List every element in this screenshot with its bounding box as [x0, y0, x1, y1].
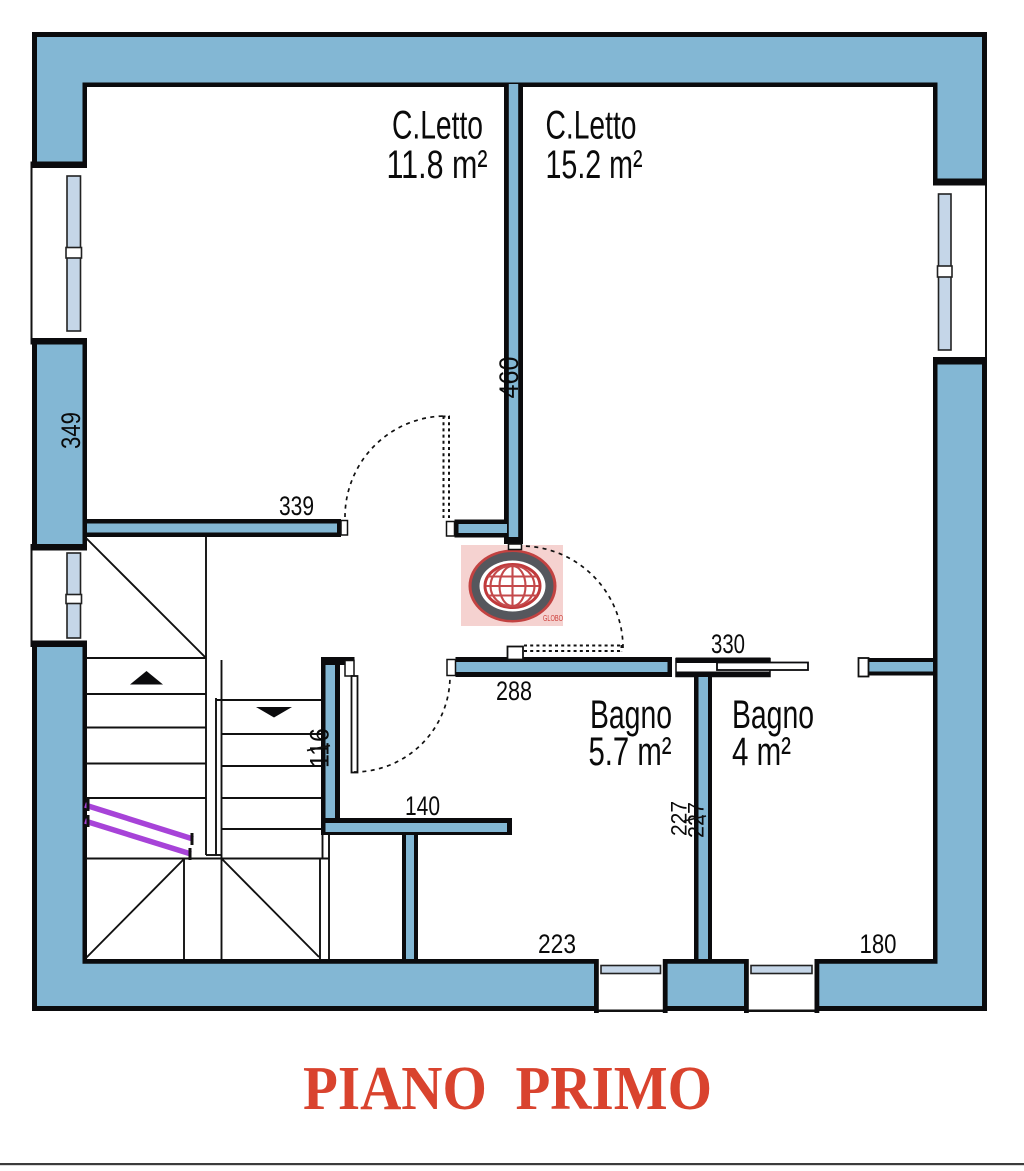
svg-text:223: 223	[538, 929, 576, 959]
svg-text:349: 349	[56, 412, 86, 449]
svg-text:180: 180	[860, 929, 897, 959]
svg-text:460: 460	[494, 357, 524, 399]
svg-text:4 m²: 4 m²	[732, 730, 791, 774]
svg-text:GLOBO: GLOBO	[543, 614, 563, 623]
svg-text:C.Letto: C.Letto	[546, 104, 637, 148]
svg-text:5.7 m²: 5.7 m²	[589, 730, 672, 774]
svg-text:C.Letto: C.Letto	[392, 104, 483, 148]
svg-text:288: 288	[496, 676, 532, 706]
svg-text:PIANO PRIMO: PIANO PRIMO	[303, 1055, 712, 1123]
svg-text:11.8 m²: 11.8 m²	[387, 143, 488, 187]
svg-text:15.2 m²: 15.2 m²	[546, 143, 643, 187]
svg-text:339: 339	[279, 491, 314, 521]
svg-text:330: 330	[711, 629, 745, 659]
svg-text:140: 140	[405, 791, 440, 821]
